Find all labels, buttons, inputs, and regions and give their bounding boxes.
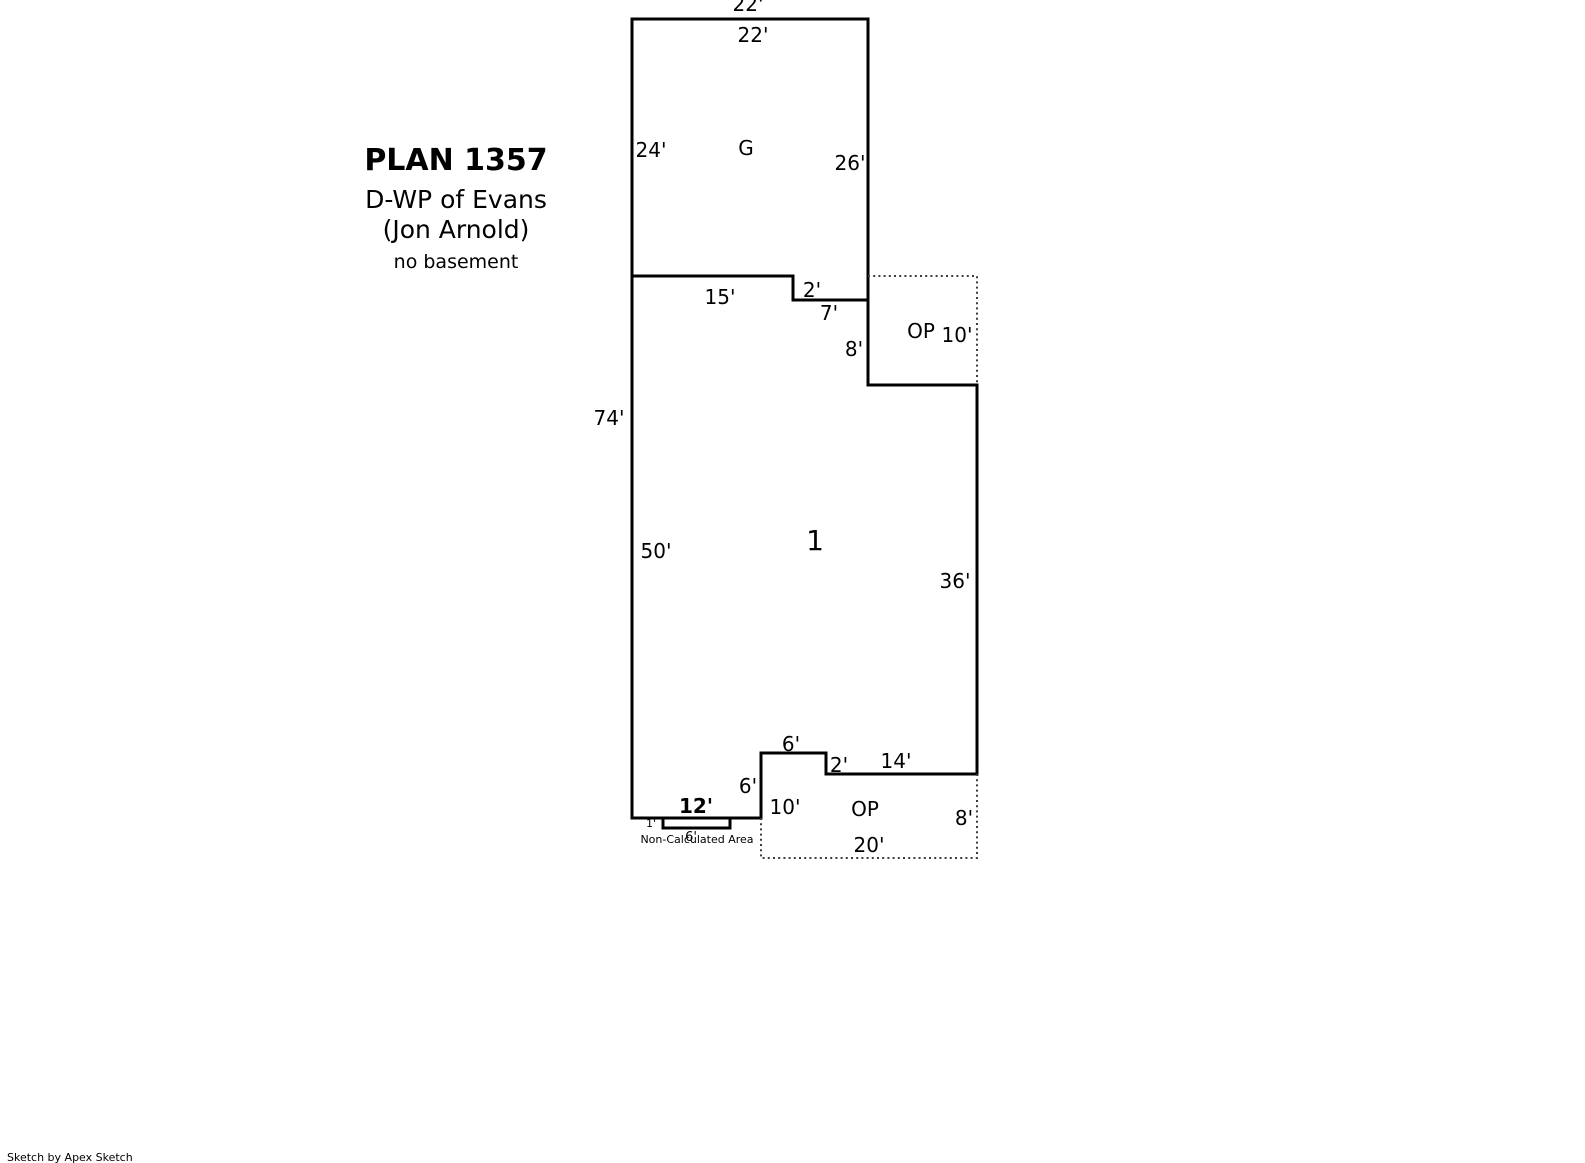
dim-main-top-step-right: 7' [820, 301, 838, 325]
plan-description: D-WP of Evans [365, 185, 547, 214]
dim-non-calculated-width: 6' [685, 830, 697, 845]
dim-garage-width-inside: 22' [738, 23, 769, 47]
open-porch-upper-label: OP [907, 319, 935, 343]
dim-main-upper-right: 8' [845, 337, 863, 361]
dim-non-calculated-height: 1' [646, 817, 656, 830]
non-calculated-area-label: Non-Calculated Area [640, 833, 753, 846]
dim-main-bottom-step-top: 6' [782, 732, 800, 756]
sketch-canvas: 22' 22' 24' G 26' 15' 2' 7' 8' OP 10' 74… [0, 0, 1585, 1163]
dim-main-left: 50' [641, 539, 672, 563]
dim-main-top: 15' [705, 285, 736, 309]
dim-main-right: 36' [940, 569, 971, 593]
garage-area-label: G [738, 136, 754, 160]
dim-main-bottom-right: 14' [881, 749, 912, 773]
dim-garage-right: 26' [835, 151, 866, 175]
dim-open-porch-lower-left: 10' [770, 795, 801, 819]
plan-title: PLAN 1357 [364, 143, 547, 178]
floor-plan-svg: 22' 22' 24' G 26' 15' 2' 7' 8' OP 10' 74… [0, 0, 1585, 1163]
main-area-label: 1 [806, 524, 824, 557]
open-porch-lower-label: OP [851, 797, 879, 821]
plan-note: no basement [394, 251, 519, 273]
dim-main-bottom-step-left: 6' [739, 774, 757, 798]
sketch-credit: Sketch by Apex Sketch [7, 1151, 133, 1163]
dim-main-overall-left: 74' [594, 406, 625, 430]
dim-garage-left: 24' [636, 138, 667, 162]
main-area-outline [632, 276, 977, 818]
non-calculated-area-rect [663, 818, 730, 828]
dim-main-bottom-step-down: 2' [830, 753, 848, 777]
dim-garage-width-outside: 22' [733, 0, 764, 16]
dim-open-porch-lower-bottom: 20' [854, 833, 885, 857]
dim-main-top-step-down: 2' [803, 278, 821, 302]
dim-open-porch-upper-right: 10' [942, 323, 973, 347]
plan-client: (Jon Arnold) [383, 215, 530, 244]
dim-open-porch-lower-right: 8' [955, 806, 973, 830]
dim-main-bottom: 12' [679, 794, 713, 818]
